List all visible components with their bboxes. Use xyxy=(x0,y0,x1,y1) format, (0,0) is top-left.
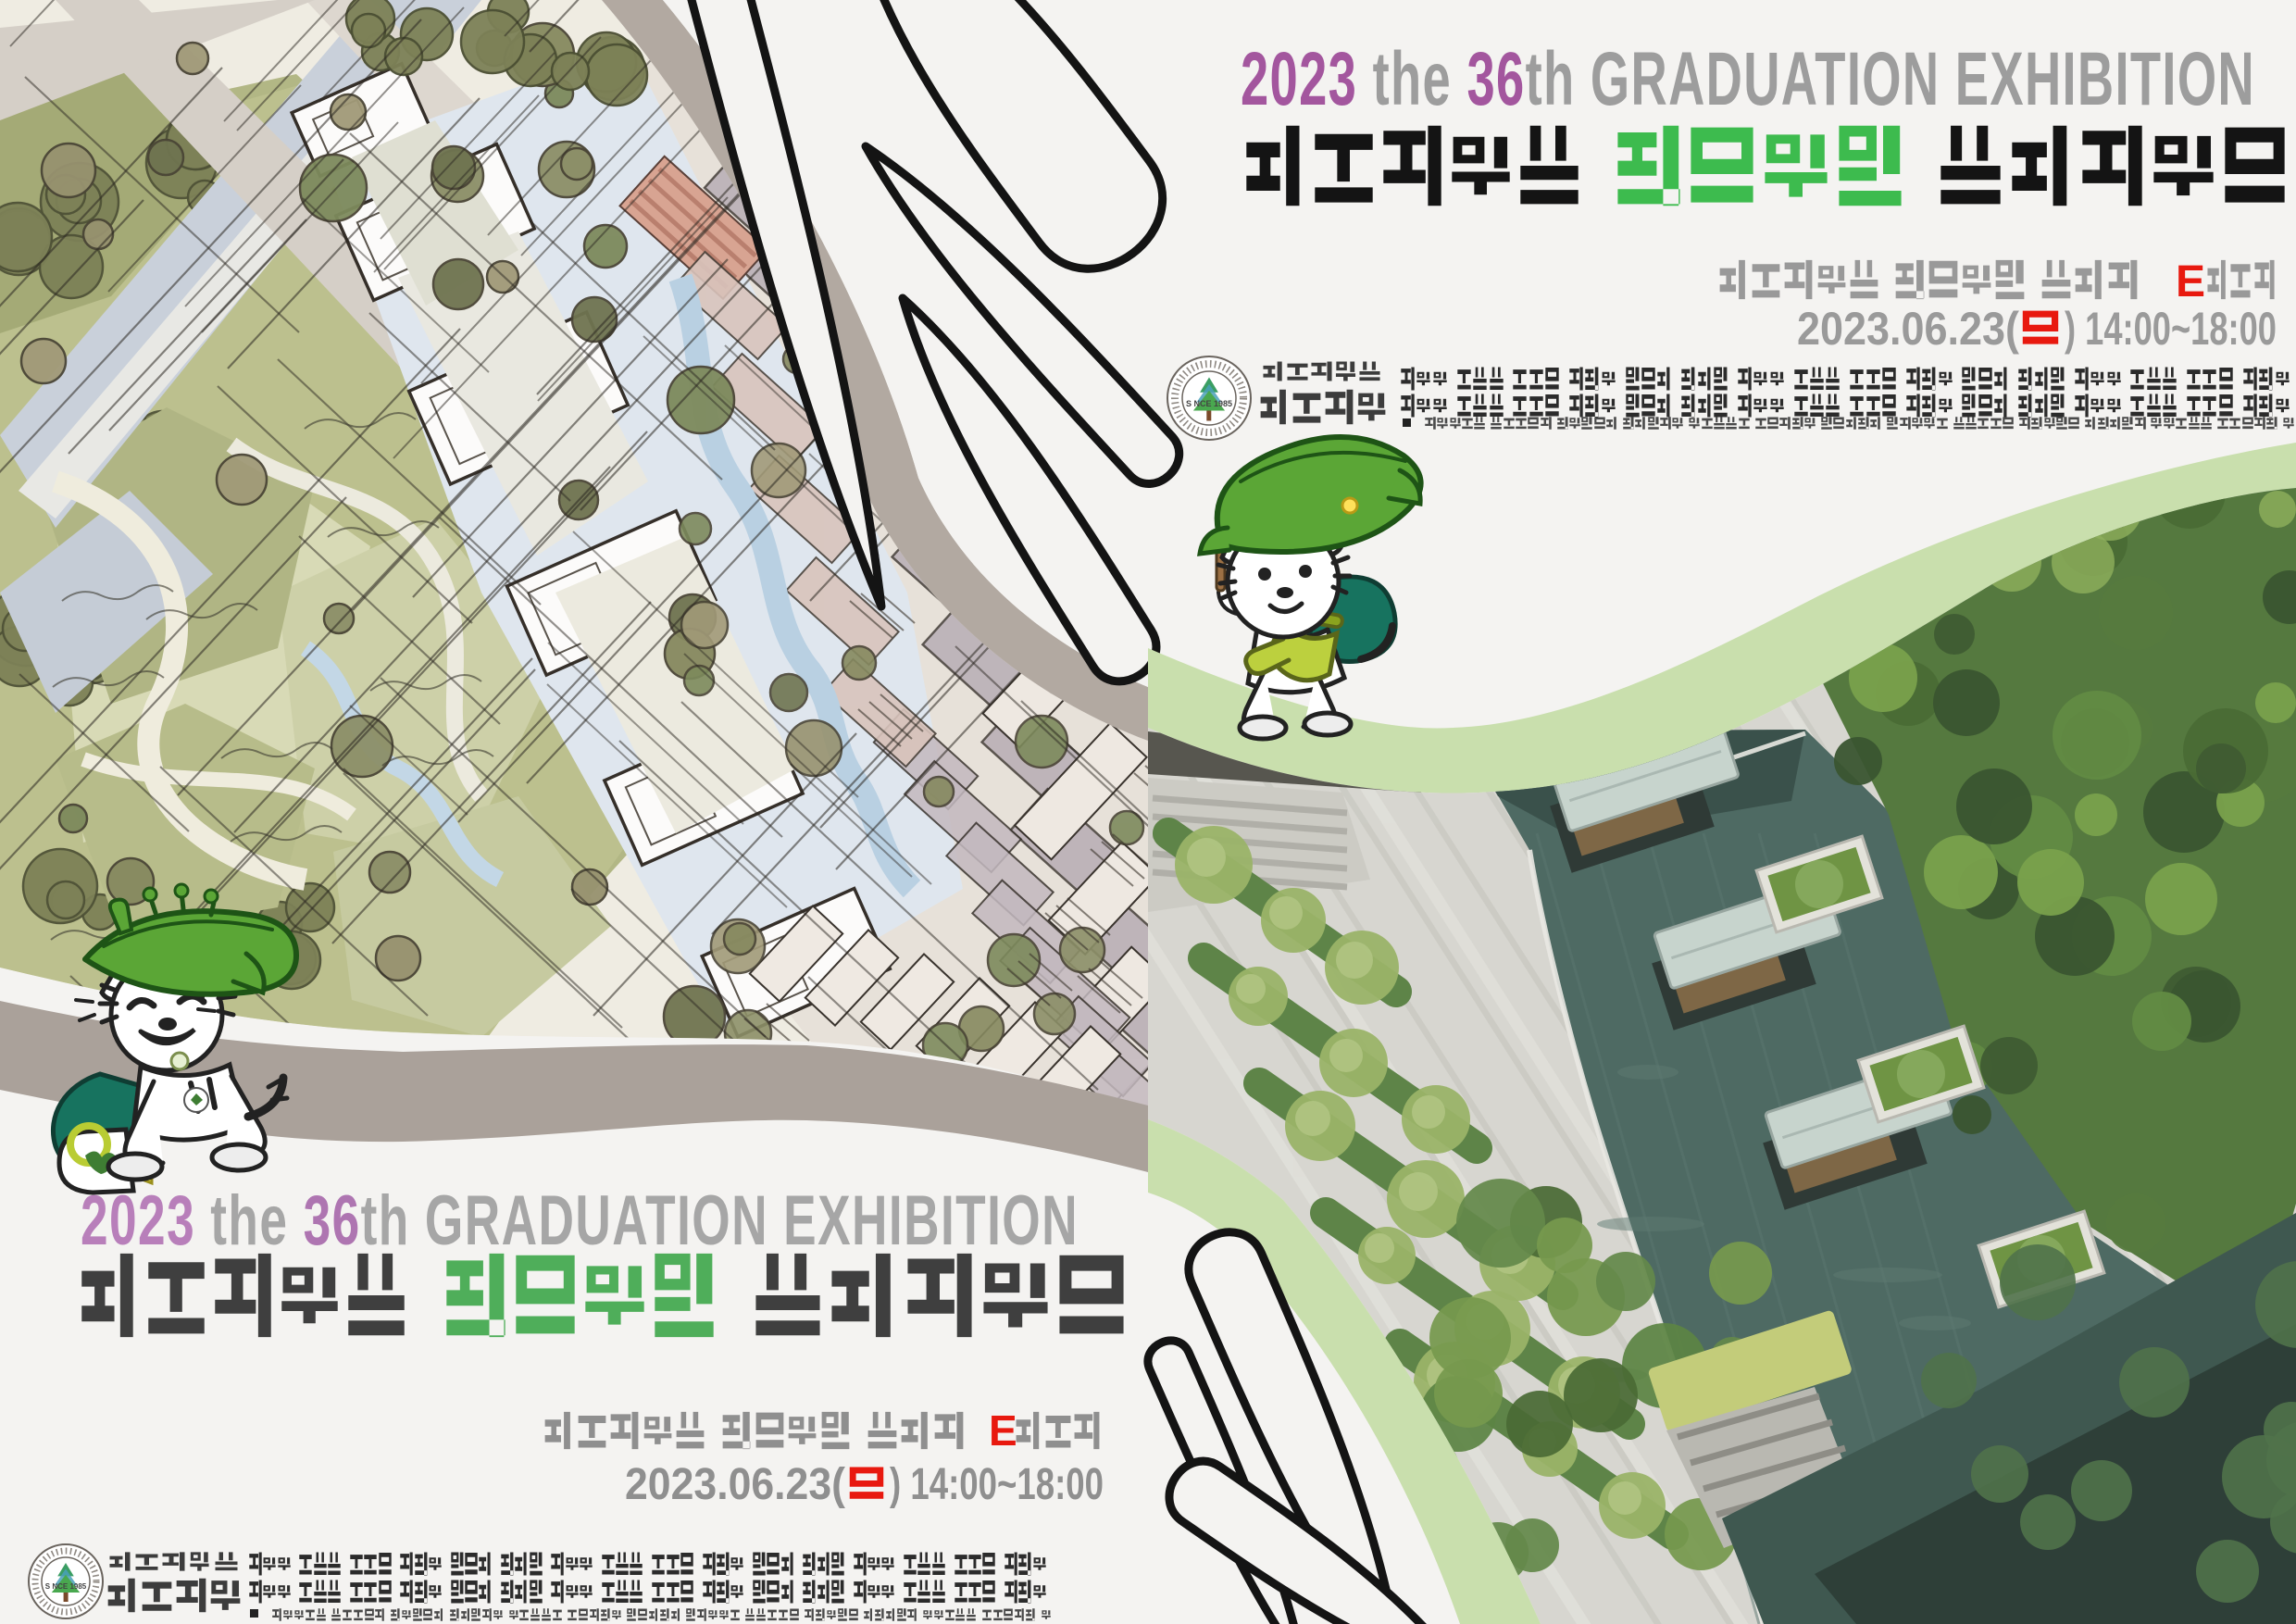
svg-text:2023.06.23(: 2023.06.23( xyxy=(1797,303,2019,355)
svg-text:E: E xyxy=(989,1406,1017,1455)
svg-text:S NCE 1985: S NCE 1985 xyxy=(1186,399,1232,408)
svg-text:2023.06.23(: 2023.06.23( xyxy=(625,1460,845,1509)
svg-text:) 14:00~18:00: ) 14:00~18:00 xyxy=(2065,303,2277,355)
svg-text:) 14:00~18:00: ) 14:00~18:00 xyxy=(890,1460,1104,1509)
svg-text:2023 the 36th GRADUATION EXHIB: 2023 the 36th GRADUATION EXHIBITION xyxy=(81,1181,1079,1260)
svg-text:S NCE 1985: S NCE 1985 xyxy=(45,1582,87,1591)
svg-text:E: E xyxy=(2176,257,2205,306)
svg-text:2023 the 36th GRADUATION EXHIB: 2023 the 36th GRADUATION EXHIBITION xyxy=(1241,37,2255,121)
